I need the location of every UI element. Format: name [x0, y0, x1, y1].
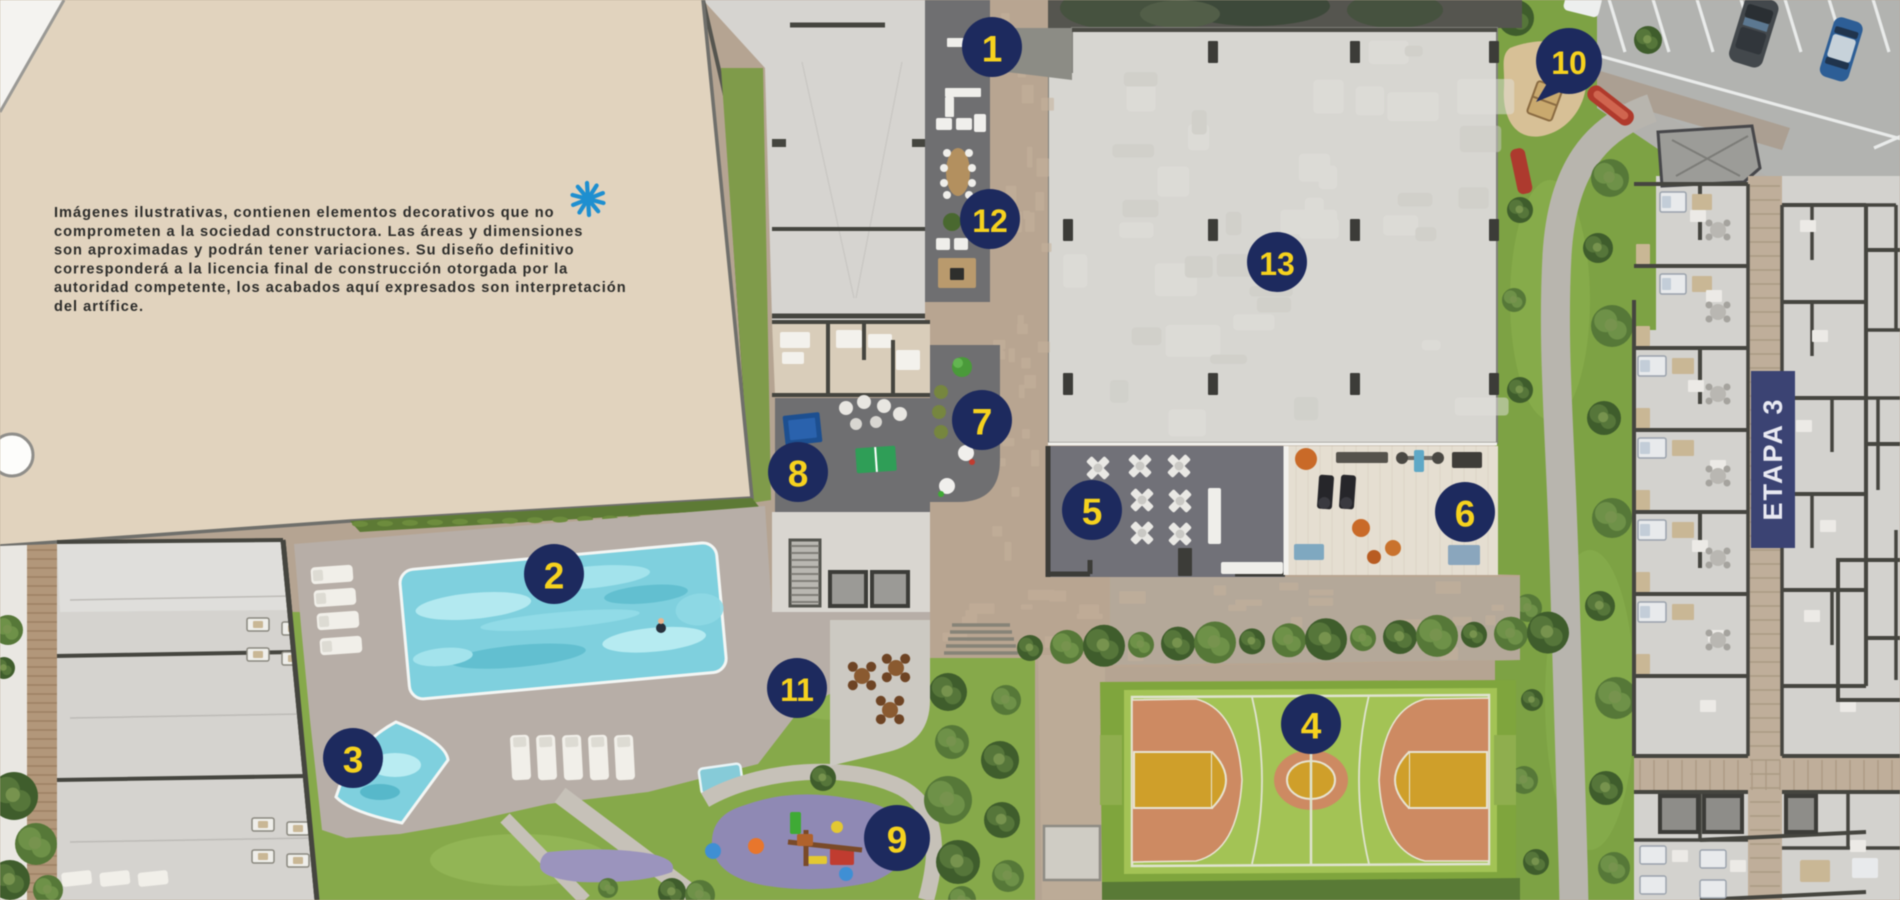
- svg-text:12: 12: [972, 203, 1008, 239]
- svg-text:1: 1: [982, 29, 1003, 70]
- svg-text:3: 3: [343, 740, 364, 781]
- svg-text:comprometen a la sociedad cons: comprometen a la sociedad constructora. …: [54, 224, 583, 240]
- svg-text:9: 9: [887, 820, 908, 861]
- svg-text:son aproximadas y podrán tener: son aproximadas y podrán tener variacion…: [54, 243, 575, 259]
- svg-text:Imágenes ilustrativas, contien: Imágenes ilustrativas, contienen element…: [54, 205, 555, 221]
- svg-text:2: 2: [544, 556, 565, 597]
- svg-text:13: 13: [1259, 246, 1295, 282]
- svg-text:autoridad competente, los acab: autoridad competente, los acabados aquí …: [54, 280, 627, 296]
- svg-text:corresponderá a la licencia fi: corresponderá a la licencia final de con…: [54, 261, 568, 277]
- svg-text:11: 11: [780, 672, 814, 708]
- svg-text:4: 4: [1301, 706, 1322, 747]
- svg-text:7: 7: [972, 402, 993, 443]
- svg-text:10: 10: [1551, 45, 1587, 81]
- svg-text:5: 5: [1082, 492, 1103, 533]
- svg-text:ETAPA 3: ETAPA 3: [1758, 397, 1788, 520]
- svg-text:del artífice.: del artífice.: [54, 299, 144, 315]
- svg-text:6: 6: [1455, 494, 1476, 535]
- svg-text:8: 8: [788, 454, 809, 495]
